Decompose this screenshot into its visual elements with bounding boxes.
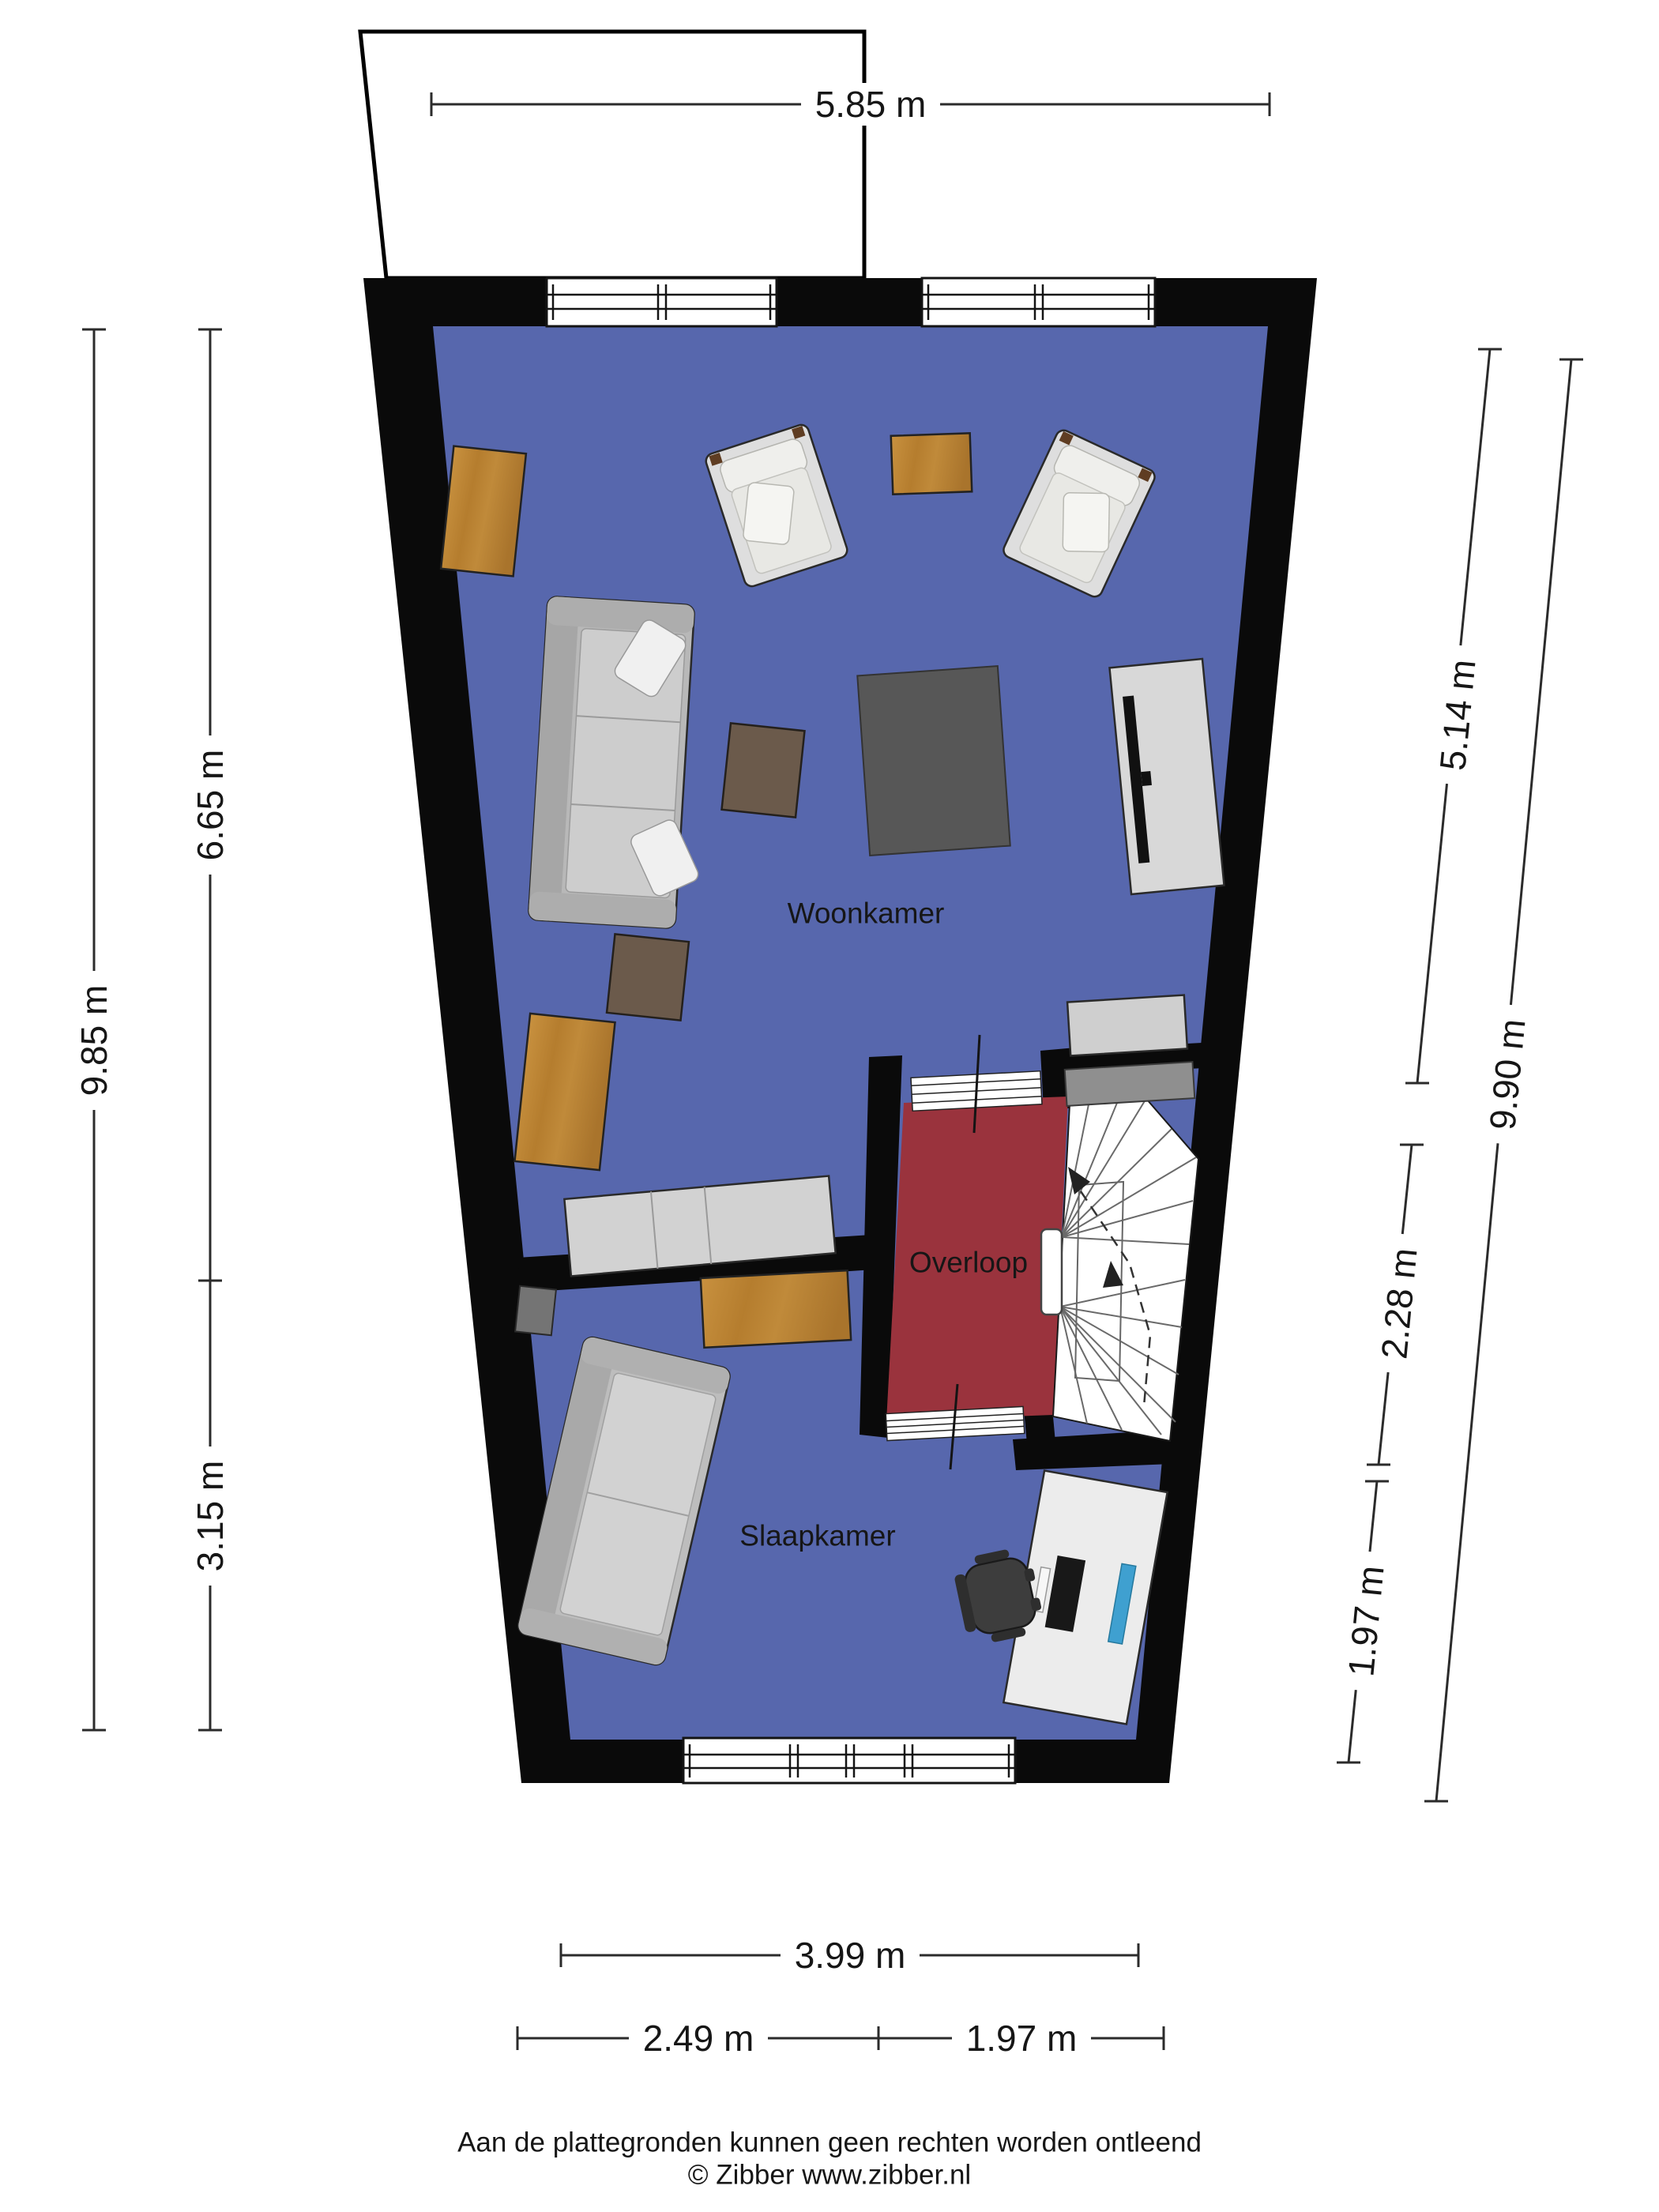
floor-plan-canvas: Woonkamer Overloop Slaapkamer 5.85 m 9.8… [0,0,1659,2212]
window-frame [547,278,777,326]
footer-copyright: © Zibber www.zibber.nl [688,2160,971,2191]
dimension-label: 1.97 m [1340,1564,1391,1679]
room-label-slaapkamer: Slaapkamer [739,1520,895,1552]
dimension-label: 3.99 m [795,1935,906,1976]
sideboard-wood-left [441,446,526,577]
dimension-right-outer: 9.90 m [1424,359,1583,1801]
stair-newel-post [1041,1229,1062,1315]
window-frame [683,1738,1015,1783]
dimension-label: 3.15 m [190,1461,231,1572]
wall-niche-box [515,1286,556,1335]
dimension-left-inner: 6.65 m 3.15 m [189,329,231,1730]
dimension-label: 5.14 m [1431,658,1483,773]
dimension-label: 9.85 m [73,985,115,1097]
coffee-table-wood [514,1014,615,1170]
dimension-label: 2.28 m [1373,1247,1424,1361]
floor-plan-page: Woonkamer Overloop Slaapkamer 5.85 m 9.8… [0,0,1659,2212]
side-table-wood-top [891,433,972,494]
dimension-label: 5.85 m [815,84,927,125]
window-top-left [547,278,777,326]
dimension-label: 6.65 m [190,750,231,861]
armchair-pillow [743,482,794,545]
window-bottom [683,1738,1015,1783]
armchair-pillow [1063,493,1109,552]
dimension-left-outer: 9.85 m [73,329,115,1730]
side-table-dark-upper [722,723,805,817]
dimension-bottom-split: 2.49 m 1.97 m [517,2017,1164,2060]
dimension-label: 9.90 m [1481,1018,1533,1132]
dimension-bottom-full: 3.99 m [561,1934,1138,1977]
dimension-label: 2.49 m [643,2018,754,2059]
cabinet-near-stairs [1067,995,1187,1056]
room-label-woonkamer: Woonkamer [788,897,945,930]
low-unit-stairwell [1065,1062,1195,1106]
room-label-overloop: Overloop [909,1247,1028,1279]
tv-stand [1141,771,1152,786]
dimension-label: 1.97 m [966,2018,1078,2059]
rug [857,666,1010,856]
window-top-right [922,278,1155,326]
side-table-dark-lower [607,934,689,1020]
footer-disclaimer: Aan de plattegronden kunnen geen rechten… [457,2127,1202,2158]
building-extension-outline [360,32,864,278]
table-wood-slaapkamer [701,1270,851,1348]
dimension-right-inner: 5.14 m 2.28 m 1.97 m [1337,349,1502,1762]
window-frame [922,278,1155,326]
